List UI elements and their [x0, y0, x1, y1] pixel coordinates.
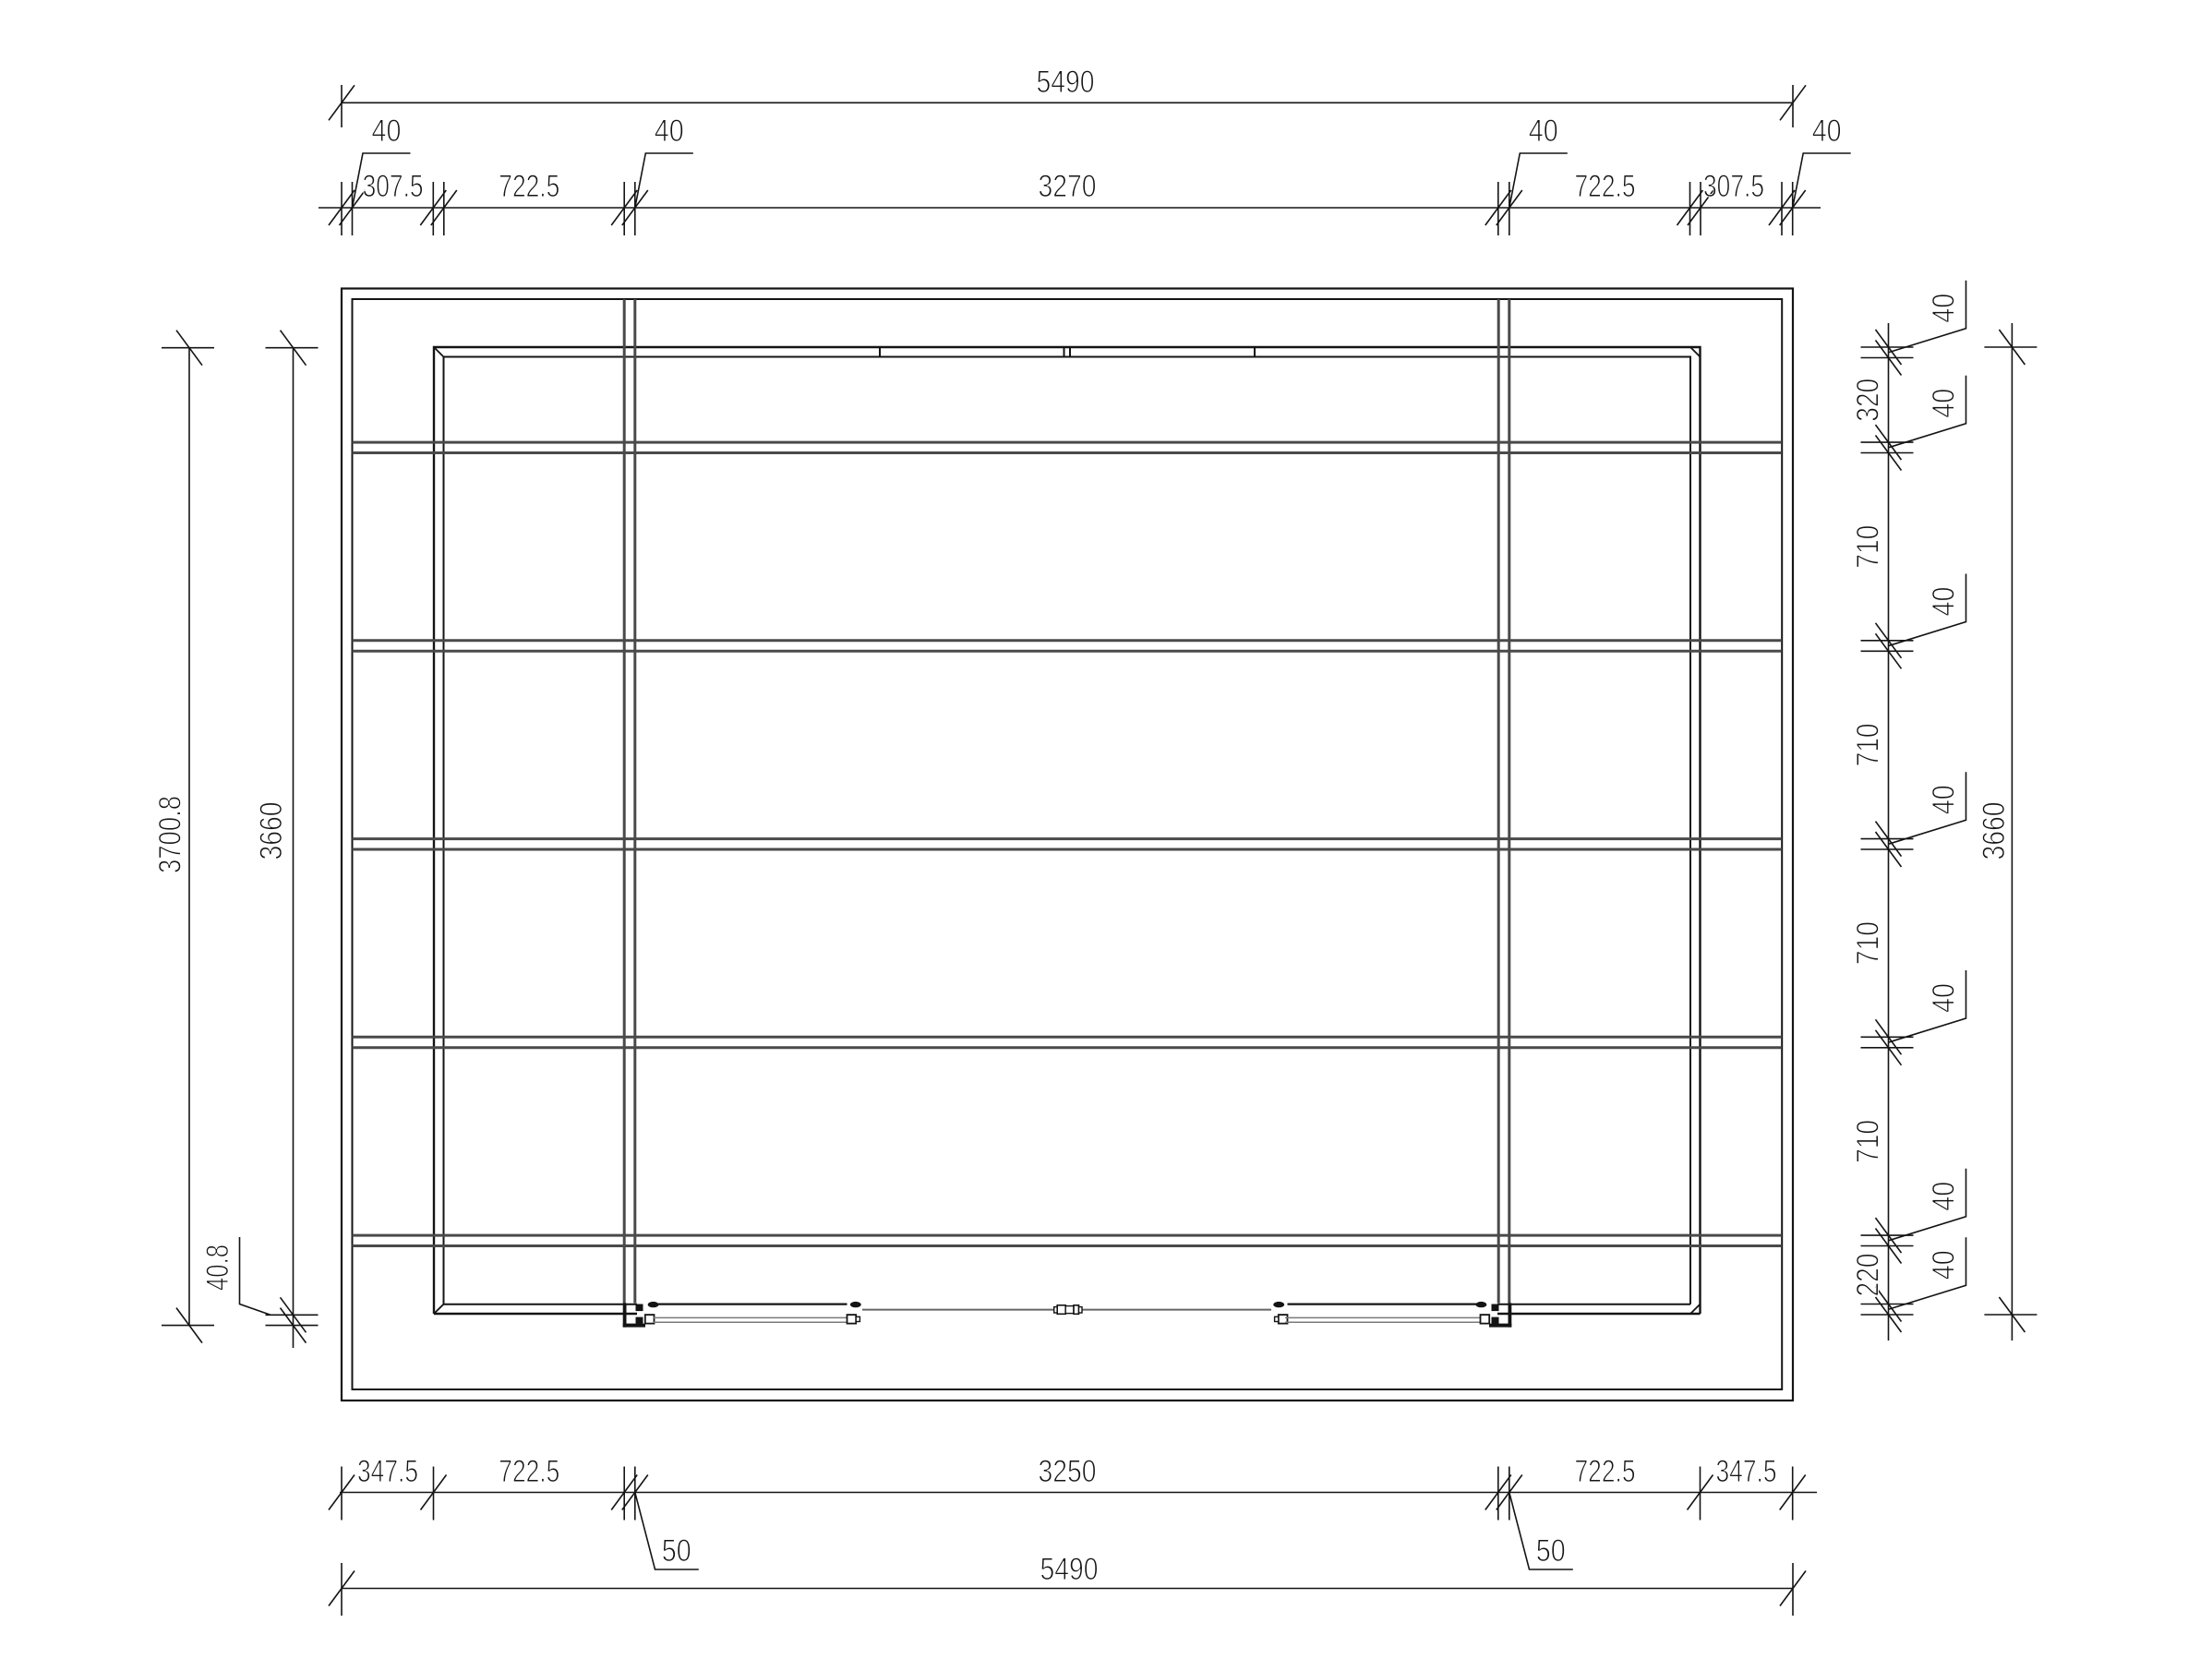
svg-text:40.8: 40.8 [200, 1244, 235, 1291]
svg-text:40: 40 [372, 114, 402, 149]
svg-text:710: 710 [1850, 525, 1885, 569]
svg-text:307.5: 307.5 [363, 169, 424, 204]
svg-text:3700.8: 3700.8 [153, 796, 188, 873]
svg-text:3270: 3270 [1039, 169, 1097, 204]
svg-text:40: 40 [1529, 114, 1558, 149]
svg-text:722.5: 722.5 [1575, 1454, 1636, 1489]
svg-text:722.5: 722.5 [1575, 169, 1636, 204]
svg-text:3250: 3250 [1039, 1454, 1097, 1489]
svg-text:40: 40 [1927, 294, 1962, 323]
svg-text:40: 40 [1812, 114, 1842, 149]
svg-text:40: 40 [1927, 983, 1962, 1013]
svg-text:40: 40 [1927, 785, 1962, 814]
svg-text:40: 40 [1927, 1182, 1962, 1211]
svg-text:40: 40 [1927, 389, 1962, 418]
svg-text:220: 220 [1850, 1254, 1885, 1297]
svg-text:347.5: 347.5 [357, 1454, 418, 1489]
svg-text:50: 50 [662, 1533, 691, 1569]
svg-text:3660: 3660 [254, 802, 289, 860]
svg-text:5490: 5490 [1040, 1552, 1099, 1587]
svg-text:320: 320 [1850, 379, 1885, 422]
svg-text:710: 710 [1850, 921, 1885, 965]
svg-text:40: 40 [655, 114, 684, 149]
svg-text:5490: 5490 [1037, 65, 1095, 100]
svg-text:722.5: 722.5 [499, 169, 559, 204]
svg-text:50: 50 [1536, 1533, 1566, 1569]
svg-text:40: 40 [1927, 1250, 1962, 1280]
svg-text:710: 710 [1850, 1120, 1885, 1163]
svg-text:347.5: 347.5 [1716, 1454, 1777, 1489]
svg-text:722.5: 722.5 [499, 1454, 559, 1489]
svg-text:40: 40 [1927, 587, 1962, 617]
svg-text:3660: 3660 [1977, 802, 2012, 860]
svg-text:307.5: 307.5 [1703, 169, 1764, 204]
svg-text:710: 710 [1850, 723, 1885, 766]
